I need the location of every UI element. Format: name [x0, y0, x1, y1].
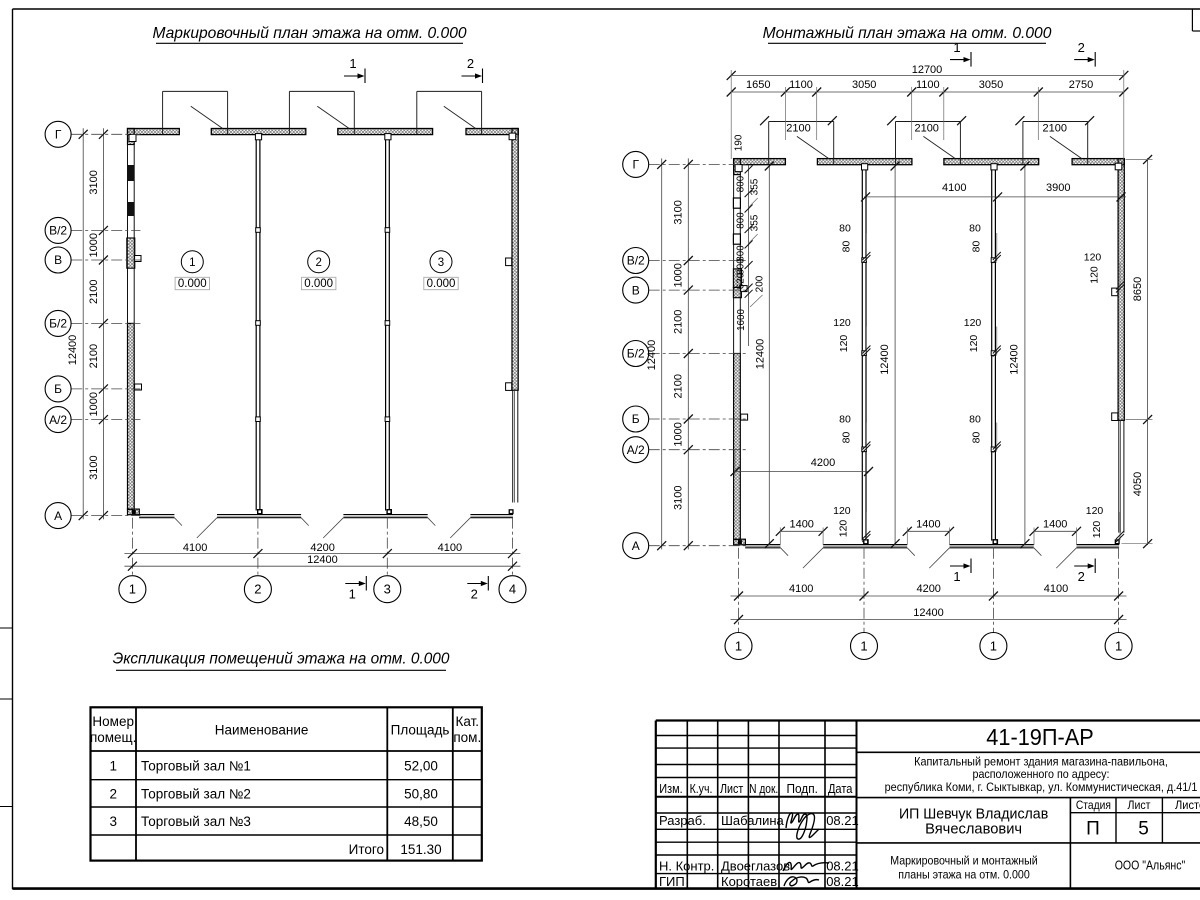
svg-text:190: 190: [734, 134, 745, 151]
svg-text:80: 80: [839, 223, 851, 235]
svg-text:Изм.: Изм.: [659, 782, 682, 796]
svg-text:120: 120: [833, 505, 851, 517]
svg-text:120: 120: [837, 520, 849, 538]
svg-text:1: 1: [860, 638, 867, 653]
svg-text:2100: 2100: [673, 374, 685, 398]
svg-text:2100: 2100: [88, 279, 100, 303]
svg-text:А: А: [632, 539, 640, 553]
svg-text:1: 1: [349, 56, 356, 71]
svg-text:0.000: 0.000: [178, 278, 207, 290]
svg-text:80: 80: [969, 414, 981, 426]
svg-text:3050: 3050: [979, 79, 1003, 91]
svg-text:2100: 2100: [914, 123, 938, 135]
svg-text:Торговый зал №1: Торговый зал №1: [141, 758, 251, 773]
svg-text:12400: 12400: [879, 344, 891, 375]
svg-text:355: 355: [750, 178, 761, 195]
svg-text:4: 4: [509, 582, 516, 597]
svg-text:Подп.: Подп.: [786, 782, 818, 796]
svg-text:4200: 4200: [916, 583, 940, 595]
svg-text:0.000: 0.000: [304, 278, 333, 290]
svg-text:Торговый зал №2: Торговый зал №2: [141, 786, 251, 801]
svg-text:В/2: В/2: [627, 254, 645, 268]
svg-text:120: 120: [1089, 266, 1101, 284]
svg-text:Двоеглазов: Двоеглазов: [721, 859, 790, 874]
svg-text:Итого: Итого: [349, 842, 384, 857]
svg-text:1400: 1400: [916, 518, 940, 530]
svg-text:1000: 1000: [673, 422, 685, 446]
svg-text:2100: 2100: [1043, 123, 1067, 135]
svg-text:41-19П-АР: 41-19П-АР: [986, 724, 1093, 750]
svg-text:4100: 4100: [942, 182, 966, 194]
svg-text:4100: 4100: [789, 583, 813, 595]
svg-text:0.000: 0.000: [427, 278, 456, 290]
svg-text:В: В: [632, 283, 640, 297]
svg-text:2: 2: [467, 56, 474, 71]
svg-text:3900: 3900: [1046, 182, 1070, 194]
svg-text:5: 5: [1138, 819, 1149, 840]
svg-text:12700: 12700: [912, 64, 943, 76]
svg-text:2100: 2100: [673, 310, 685, 334]
svg-text:800: 800: [736, 258, 747, 275]
svg-text:Шабалина: Шабалина: [721, 813, 785, 828]
svg-text:2100: 2100: [88, 344, 100, 368]
svg-text:планы этажа на отм. 0.000: планы этажа на отм. 0.000: [898, 868, 1030, 882]
svg-text:3100: 3100: [673, 200, 685, 224]
svg-text:3100: 3100: [88, 170, 100, 194]
svg-text:3: 3: [109, 814, 117, 829]
svg-text:3: 3: [438, 257, 444, 269]
svg-text:Н. Контр.: Н. Контр.: [659, 859, 714, 874]
svg-text:Лист: Лист: [1128, 798, 1151, 812]
svg-text:4200: 4200: [310, 542, 334, 554]
svg-text:120: 120: [964, 317, 982, 329]
svg-text:4200: 4200: [811, 457, 835, 469]
svg-text:2100: 2100: [786, 123, 810, 135]
svg-text:Б/2: Б/2: [627, 347, 645, 361]
svg-text:1000: 1000: [88, 392, 100, 416]
svg-text:пом.: пом.: [453, 730, 481, 745]
svg-text:расположенного по адресу:: расположенного по адресу:: [973, 767, 1110, 781]
svg-text:республика Коми, г. Сыктывкар,: республика Коми, г. Сыктывкар, ул. Комму…: [885, 780, 1198, 794]
svg-text:1100: 1100: [789, 79, 813, 91]
svg-text:2: 2: [1078, 40, 1085, 55]
svg-text:N док.: N док.: [749, 782, 778, 796]
svg-text:200: 200: [755, 275, 766, 292]
svg-text:80: 80: [841, 241, 853, 253]
svg-text:Наименование: Наименование: [215, 723, 309, 738]
svg-text:120: 120: [968, 335, 980, 353]
svg-text:ООО "Альянс": ООО "Альянс": [1115, 859, 1186, 873]
svg-text:1: 1: [109, 758, 117, 773]
svg-text:Разраб.: Разраб.: [659, 813, 706, 828]
svg-text:12400: 12400: [307, 554, 338, 566]
svg-text:120: 120: [1091, 521, 1103, 539]
svg-text:Г: Г: [632, 158, 639, 172]
svg-text:К.уч.: К.уч.: [690, 782, 713, 796]
svg-text:1000: 1000: [88, 233, 100, 257]
svg-text:12400: 12400: [913, 607, 944, 619]
svg-text:Лист: Лист: [720, 782, 744, 796]
svg-text:2: 2: [1078, 569, 1085, 584]
svg-text:Кат.: Кат.: [456, 714, 480, 729]
svg-text:помещ.: помещ.: [90, 730, 136, 745]
svg-text:Дата: Дата: [828, 782, 853, 796]
svg-text:ГИП: ГИП: [659, 874, 685, 889]
svg-text:08.21: 08.21: [826, 874, 859, 889]
svg-text:Листов: Листов: [1175, 798, 1200, 812]
svg-text:Г: Г: [55, 128, 62, 142]
svg-text:12400: 12400: [67, 335, 79, 366]
svg-text:12400: 12400: [646, 340, 658, 371]
svg-text:4100: 4100: [1044, 583, 1068, 595]
svg-text:Вячеславович: Вячеславович: [925, 822, 1022, 838]
svg-text:120: 120: [1084, 252, 1102, 264]
svg-text:Б: Б: [54, 382, 62, 396]
svg-text:48,50: 48,50: [404, 814, 438, 829]
svg-text:Монтажный план этажа на отм. 0: Монтажный план этажа на отм. 0.000: [763, 25, 1052, 42]
svg-text:Б/2: Б/2: [49, 317, 67, 331]
svg-text:120: 120: [1086, 505, 1104, 517]
svg-text:1: 1: [129, 582, 136, 597]
svg-text:1600: 1600: [736, 309, 747, 331]
svg-text:А/2: А/2: [627, 443, 645, 457]
svg-text:1: 1: [953, 569, 960, 584]
svg-text:08.21: 08.21: [826, 813, 859, 828]
svg-text:1: 1: [1115, 638, 1122, 653]
svg-text:2: 2: [109, 786, 117, 801]
svg-text:1: 1: [990, 638, 997, 653]
svg-text:2: 2: [315, 257, 321, 269]
svg-text:151.30: 151.30: [400, 842, 441, 857]
svg-text:3050: 3050: [852, 79, 876, 91]
svg-text:2: 2: [254, 582, 261, 597]
svg-text:800: 800: [736, 212, 747, 229]
svg-text:80: 80: [841, 432, 853, 444]
svg-text:800: 800: [736, 175, 747, 192]
svg-text:12400: 12400: [754, 339, 766, 370]
svg-text:1100: 1100: [916, 79, 940, 91]
svg-text:Экспликация помещений этажа на: Экспликация помещений этажа на отм. 0.00…: [113, 651, 450, 668]
svg-text:В: В: [54, 253, 62, 267]
svg-text:В/2: В/2: [49, 224, 67, 238]
svg-text:А: А: [54, 509, 62, 523]
svg-text:52,00: 52,00: [404, 758, 438, 773]
svg-text:12400: 12400: [1009, 344, 1021, 375]
svg-text:50,80: 50,80: [404, 786, 438, 801]
svg-text:Маркировочный план этажа на от: Маркировочный план этажа на отм. 0.000: [152, 25, 466, 42]
svg-text:Номер: Номер: [92, 714, 134, 729]
svg-text:4050: 4050: [1132, 472, 1144, 496]
svg-text:1000: 1000: [673, 263, 685, 287]
svg-text:4100: 4100: [438, 542, 462, 554]
svg-text:Площадь: Площадь: [391, 723, 450, 738]
svg-text:ИП Шевчук Владислав: ИП Шевчук Владислав: [899, 807, 1049, 823]
svg-text:1400: 1400: [789, 518, 813, 530]
svg-text:3100: 3100: [88, 455, 100, 479]
svg-text:А/2: А/2: [49, 413, 67, 427]
svg-text:Б: Б: [632, 412, 640, 426]
svg-text:Маркировочный и монтажный: Маркировочный и монтажный: [890, 854, 1038, 868]
svg-text:Торговый зал №3: Торговый зал №3: [141, 814, 251, 829]
svg-text:2750: 2750: [1069, 79, 1093, 91]
svg-text:1650: 1650: [746, 79, 770, 91]
svg-text:80: 80: [970, 432, 982, 444]
svg-text:3100: 3100: [673, 485, 685, 509]
svg-text:80: 80: [969, 223, 981, 235]
svg-text:4100: 4100: [183, 542, 207, 554]
svg-text:П: П: [1086, 819, 1100, 840]
svg-text:1: 1: [735, 638, 742, 653]
svg-text:120: 120: [838, 335, 850, 353]
svg-text:620: 620: [736, 272, 747, 289]
svg-text:2: 2: [471, 587, 478, 602]
svg-text:Стадия: Стадия: [1076, 798, 1111, 812]
svg-text:3: 3: [384, 582, 391, 597]
svg-text:80: 80: [839, 414, 851, 426]
svg-text:1400: 1400: [1043, 518, 1067, 530]
svg-text:120: 120: [833, 317, 851, 329]
svg-text:1: 1: [953, 40, 960, 55]
svg-text:Коротаев: Коротаев: [721, 874, 777, 889]
svg-text:355: 355: [750, 214, 761, 231]
svg-text:8650: 8650: [1132, 277, 1144, 301]
svg-text:08.21: 08.21: [826, 859, 859, 874]
svg-text:1: 1: [349, 587, 356, 602]
svg-text:80: 80: [970, 241, 982, 253]
svg-text:1: 1: [189, 257, 195, 269]
